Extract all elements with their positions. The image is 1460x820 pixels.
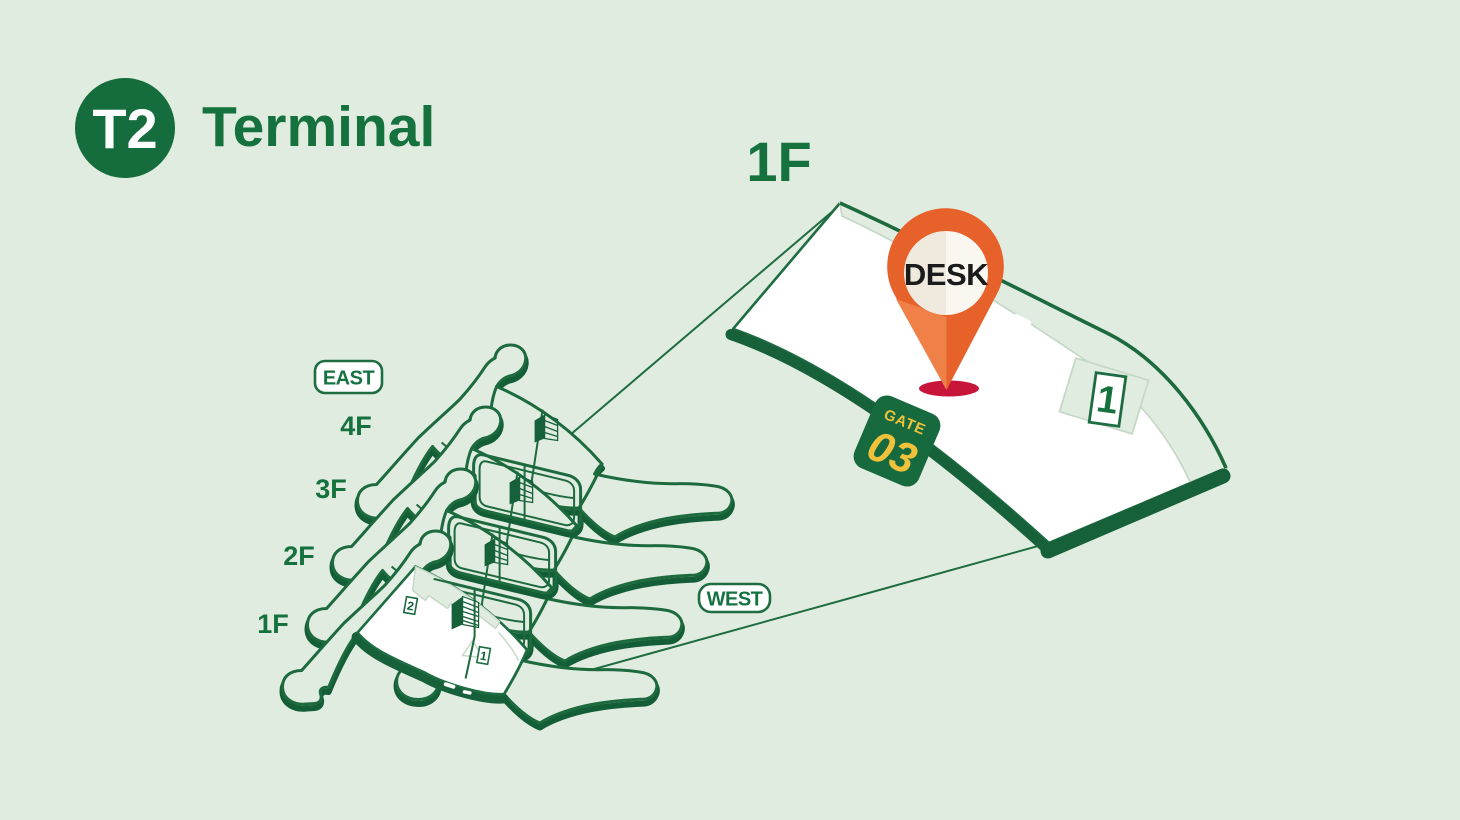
- svg-text:1F: 1F: [746, 130, 811, 193]
- svg-text:2F: 2F: [283, 541, 315, 571]
- svg-text:4F: 4F: [340, 411, 372, 441]
- svg-text:WEST: WEST: [707, 589, 763, 611]
- svg-text:EAST: EAST: [323, 368, 375, 390]
- svg-text:Terminal: Terminal: [202, 95, 435, 159]
- svg-text:3F: 3F: [315, 474, 347, 504]
- svg-text:T2: T2: [92, 97, 157, 160]
- svg-text:1F: 1F: [257, 609, 289, 639]
- svg-text:DESK: DESK: [904, 257, 989, 292]
